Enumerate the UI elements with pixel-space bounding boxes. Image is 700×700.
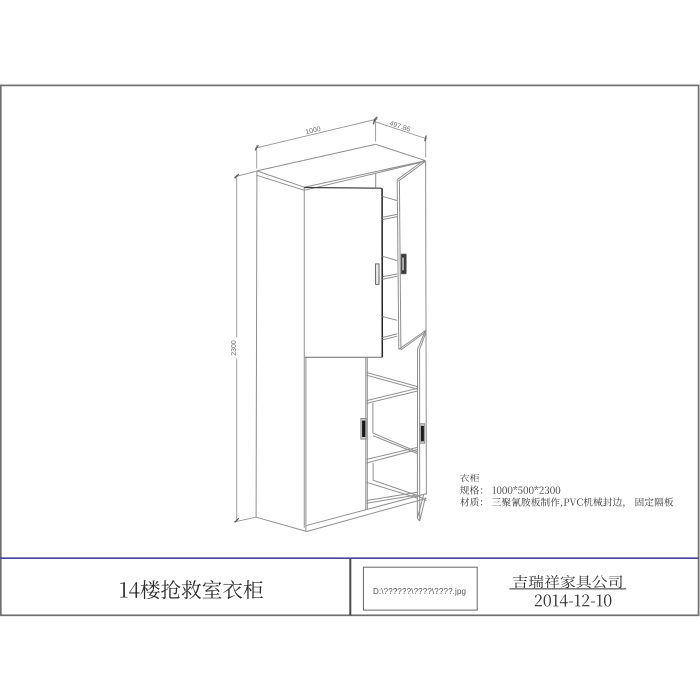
svg-text:2300: 2300: [231, 340, 238, 356]
svg-text:D:\??????\????\????.jpg: D:\??????\????\????.jpg: [373, 587, 466, 596]
